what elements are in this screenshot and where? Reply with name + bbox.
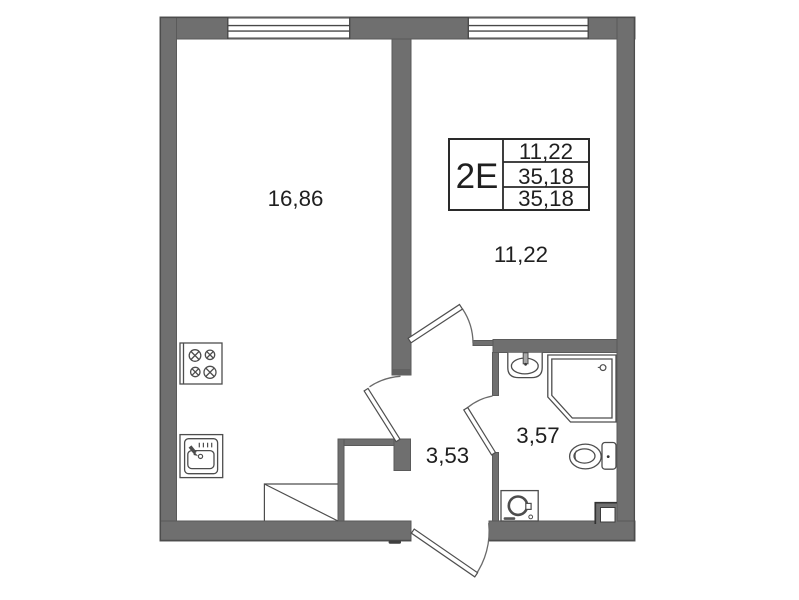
svg-text:2E: 2E xyxy=(456,157,499,196)
svg-text:3,53: 3,53 xyxy=(426,443,469,468)
svg-text:11,22: 11,22 xyxy=(494,242,548,267)
svg-text:3,57: 3,57 xyxy=(516,423,559,448)
svg-text:35,18: 35,18 xyxy=(518,186,574,211)
svg-text:16,86: 16,86 xyxy=(268,186,324,211)
svg-text:11,22: 11,22 xyxy=(519,139,573,164)
